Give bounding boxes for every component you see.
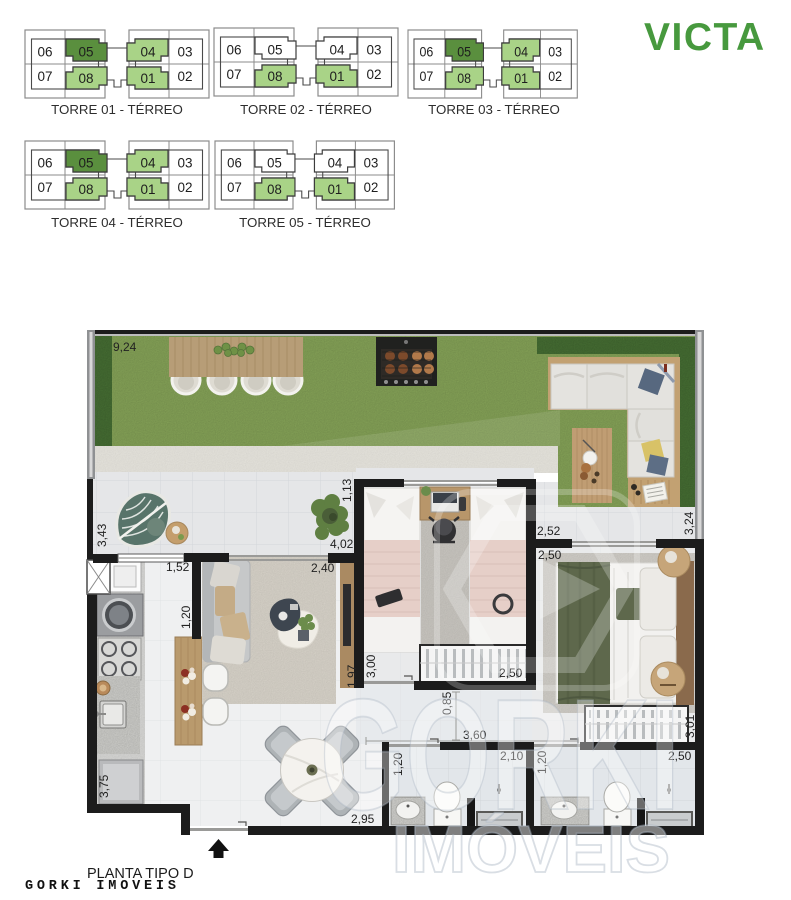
svg-text:3,24: 3,24 (682, 511, 696, 535)
svg-text:TORRE 04 - TÉRREO: TORRE 04 - TÉRREO (51, 215, 183, 230)
svg-text:TORRE 05 - TÉRREO: TORRE 05 - TÉRREO (239, 215, 371, 230)
svg-text:3,43: 3,43 (95, 523, 109, 547)
svg-text:3,01: 3,01 (683, 714, 697, 738)
svg-text:9,24: 9,24 (113, 340, 137, 354)
svg-text:1,52: 1,52 (166, 560, 190, 574)
svg-text:1,20: 1,20 (179, 605, 193, 629)
svg-text:TORRE 03 - TÉRREO: TORRE 03 - TÉRREO (428, 102, 560, 117)
svg-text:2,52: 2,52 (537, 524, 561, 538)
svg-text:VICTA: VICTA (644, 16, 766, 59)
svg-text:1,13: 1,13 (340, 478, 354, 502)
svg-text:4,02: 4,02 (330, 537, 354, 551)
svg-text:TORRE 01 - TÉRREO: TORRE 01 - TÉRREO (51, 102, 183, 117)
svg-text:3,75: 3,75 (97, 774, 111, 798)
svg-text:TORRE 02 - TÉRREO: TORRE 02 - TÉRREO (240, 102, 372, 117)
svg-text:2,40: 2,40 (311, 561, 335, 575)
svg-text:IMÓVEIS: IMÓVEIS (392, 812, 670, 887)
svg-text:PLANTA TIPO D: PLANTA TIPO D (87, 866, 194, 882)
